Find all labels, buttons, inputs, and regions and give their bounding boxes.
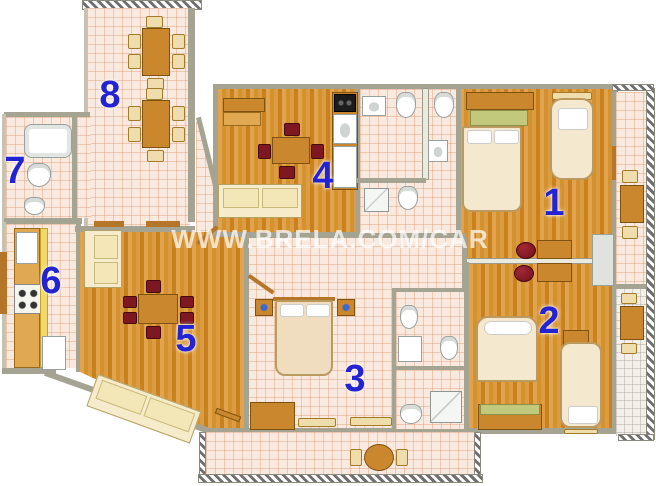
wardrobe-front bbox=[223, 112, 261, 126]
room-label-4: 4 bbox=[308, 157, 338, 195]
balcony-railing-right bbox=[646, 88, 655, 440]
toilet bbox=[440, 336, 458, 360]
kitchen-cabinet bbox=[42, 336, 66, 370]
bench-top bbox=[480, 404, 540, 415]
terrace-chair bbox=[146, 88, 163, 100]
side-table bbox=[537, 240, 572, 259]
terrace-chair bbox=[172, 127, 185, 142]
pillow bbox=[494, 130, 519, 144]
chair-red bbox=[146, 326, 161, 339]
watermark: WWW.BRELA.COM/CAR bbox=[128, 224, 532, 258]
doormat bbox=[298, 418, 336, 427]
pillow bbox=[568, 406, 598, 424]
toilet bbox=[400, 305, 418, 329]
bathroom-divider-wall bbox=[422, 88, 429, 180]
sofa-cushion bbox=[94, 262, 118, 284]
terrace-chair bbox=[146, 16, 163, 28]
chair-red bbox=[284, 123, 300, 136]
bench bbox=[470, 110, 528, 126]
balcony-railing-bottom bbox=[618, 434, 654, 441]
terrace-chair bbox=[128, 106, 141, 121]
bathroom-wall-top bbox=[392, 288, 468, 292]
chair-red bbox=[146, 280, 161, 293]
balcony-table bbox=[620, 185, 644, 223]
terrace-chair bbox=[172, 54, 185, 69]
round-table bbox=[364, 444, 394, 471]
chair-red bbox=[258, 144, 271, 159]
sofa-cushion bbox=[223, 188, 259, 208]
terrace-chair bbox=[396, 449, 408, 466]
kitchenette-sink bbox=[333, 114, 357, 144]
pillow bbox=[558, 108, 588, 130]
bedside-mat bbox=[564, 429, 598, 434]
chair-red bbox=[180, 296, 194, 308]
bidet bbox=[24, 197, 45, 215]
double-bed bbox=[476, 316, 538, 382]
kitchenette-stove bbox=[334, 94, 356, 112]
balcony-chair bbox=[622, 170, 638, 183]
toilet bbox=[434, 92, 454, 118]
terrace-chair bbox=[128, 127, 141, 142]
door-lintel bbox=[94, 221, 124, 227]
room-label-2: 2 bbox=[534, 302, 564, 340]
sofa bbox=[218, 184, 302, 218]
terrace-chair bbox=[128, 34, 141, 49]
terrace-chair bbox=[128, 54, 141, 69]
chair-red bbox=[123, 296, 137, 308]
terrace-chair bbox=[172, 106, 185, 121]
room-label-1: 1 bbox=[539, 184, 569, 222]
terrace-chair bbox=[172, 34, 185, 49]
pillow bbox=[280, 304, 304, 317]
round-chair-red bbox=[514, 265, 534, 282]
hall-strip-floor bbox=[77, 117, 91, 218]
balcony-chair bbox=[621, 293, 637, 304]
room-label-6: 6 bbox=[36, 262, 66, 300]
terrace-chair bbox=[147, 150, 164, 162]
toilet bbox=[400, 404, 422, 424]
sink bbox=[428, 140, 448, 162]
double-bed bbox=[462, 126, 522, 212]
room-label-7: 7 bbox=[0, 152, 30, 190]
wardrobe bbox=[466, 92, 534, 110]
pillow bbox=[484, 321, 532, 335]
shower-cabin bbox=[592, 234, 614, 286]
bathtub bbox=[24, 124, 72, 158]
room-3-wall-left bbox=[244, 233, 249, 433]
side-table bbox=[537, 263, 572, 282]
toilet bbox=[27, 163, 51, 187]
floor-plan: WWW.BRELA.COM/CAR 1 2 3 4 5 6 7 8 bbox=[0, 0, 656, 486]
sink bbox=[362, 96, 386, 116]
kitchen-window bbox=[0, 252, 7, 314]
chair-red bbox=[279, 166, 295, 179]
nightstand bbox=[337, 299, 355, 316]
sofa-cushion bbox=[94, 235, 118, 259]
bottom-terrace-floor bbox=[206, 432, 474, 474]
single-bed bbox=[560, 342, 602, 428]
bathroom-wall-left bbox=[392, 288, 396, 432]
bathroom-divider bbox=[392, 366, 468, 370]
terrace-railing-right bbox=[474, 432, 481, 476]
shower-tray bbox=[364, 188, 389, 212]
balcony-table bbox=[620, 306, 644, 340]
wardrobe bbox=[250, 402, 295, 430]
room-label-8: 8 bbox=[95, 76, 125, 114]
pillow bbox=[306, 304, 330, 317]
balcony-railing-top bbox=[612, 84, 654, 91]
room-label-5: 5 bbox=[171, 320, 201, 358]
terrace-chair bbox=[350, 449, 362, 466]
shower-cabin bbox=[430, 391, 462, 423]
terrace-railing-bottom bbox=[198, 474, 483, 483]
sofa-cushion bbox=[262, 188, 298, 208]
room-label-3: 3 bbox=[340, 360, 370, 398]
balcony-chair bbox=[621, 343, 637, 354]
room-7-wall-right bbox=[72, 117, 77, 221]
wardrobe bbox=[223, 98, 265, 112]
chair-red bbox=[123, 312, 137, 324]
sink-cabinet bbox=[398, 336, 422, 362]
terrace-table-2 bbox=[142, 100, 170, 148]
nightstand bbox=[255, 299, 273, 316]
balcony-divider bbox=[614, 284, 646, 289]
pillow bbox=[467, 130, 492, 144]
fridge bbox=[16, 232, 38, 264]
terrace-table-1 bbox=[142, 28, 170, 76]
double-bed bbox=[275, 300, 333, 376]
doormat bbox=[350, 417, 392, 426]
bathroom-divider-wall-h bbox=[356, 178, 426, 183]
terrace-wall-right bbox=[188, 8, 195, 222]
toilet bbox=[396, 92, 416, 118]
sofa-two-seat bbox=[84, 230, 122, 288]
dining-table bbox=[272, 137, 310, 164]
balcony-chair bbox=[622, 226, 638, 239]
toilet bbox=[398, 186, 418, 210]
single-bed bbox=[550, 98, 594, 180]
terrace-railing-left bbox=[199, 432, 206, 476]
